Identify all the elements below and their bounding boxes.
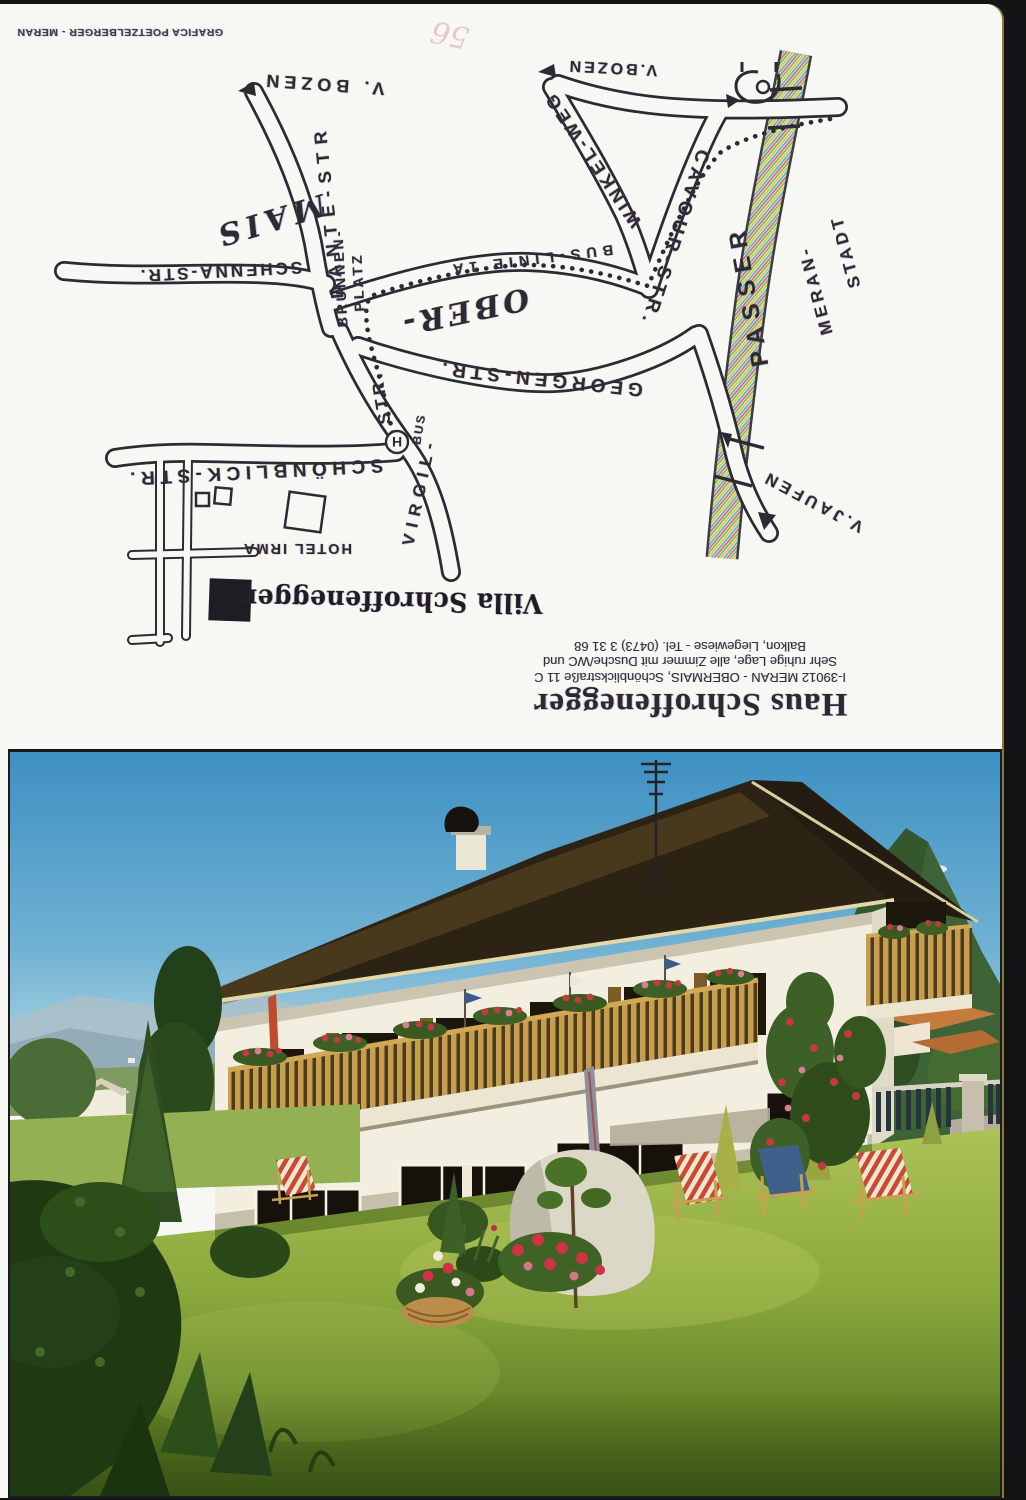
postcard-scan: H V. BOZEN V.BOZEN DANTE-STR BRUNNEN- PL… [0, 0, 1026, 1500]
printer-credit: GRAFICA POETZELBERGER - MERAN [17, 26, 223, 38]
handwritten-mark: 56 [428, 13, 473, 55]
hotel-irma-square [285, 492, 326, 533]
hotel-irma-label: HOTEL IRMA [242, 540, 352, 556]
villa-schroffenegger-label: Villa Schroffenegger [243, 583, 543, 620]
bus-stop-h-label: H [392, 434, 402, 450]
guesthouse-photo [8, 749, 1002, 1498]
direction-arrow-bozen-icon [538, 64, 556, 77]
guesthouse-name: Haus Schroffenegger [494, 685, 886, 722]
map-section: H V. BOZEN V.BOZEN DANTE-STR BRUNNEN- PL… [0, 4, 1026, 748]
guesthouse-description: Sehr ruhige Lage, alle Zimmer mit Dusche… [494, 654, 886, 670]
small-building-square [214, 487, 231, 504]
title-block: Haus Schroffenegger I-39012 MERAN - OBER… [494, 639, 886, 723]
guesthouse-address: I-39012 MERAN - OBERMAIS, Schönblickstra… [494, 670, 886, 686]
street-label-brunnen-platz: PLATZ [348, 252, 367, 312]
small-building-square [196, 493, 209, 506]
guesthouse-phone: Balkon, Liegewiese - Tel. (0473) 3 31 68 [494, 639, 886, 655]
